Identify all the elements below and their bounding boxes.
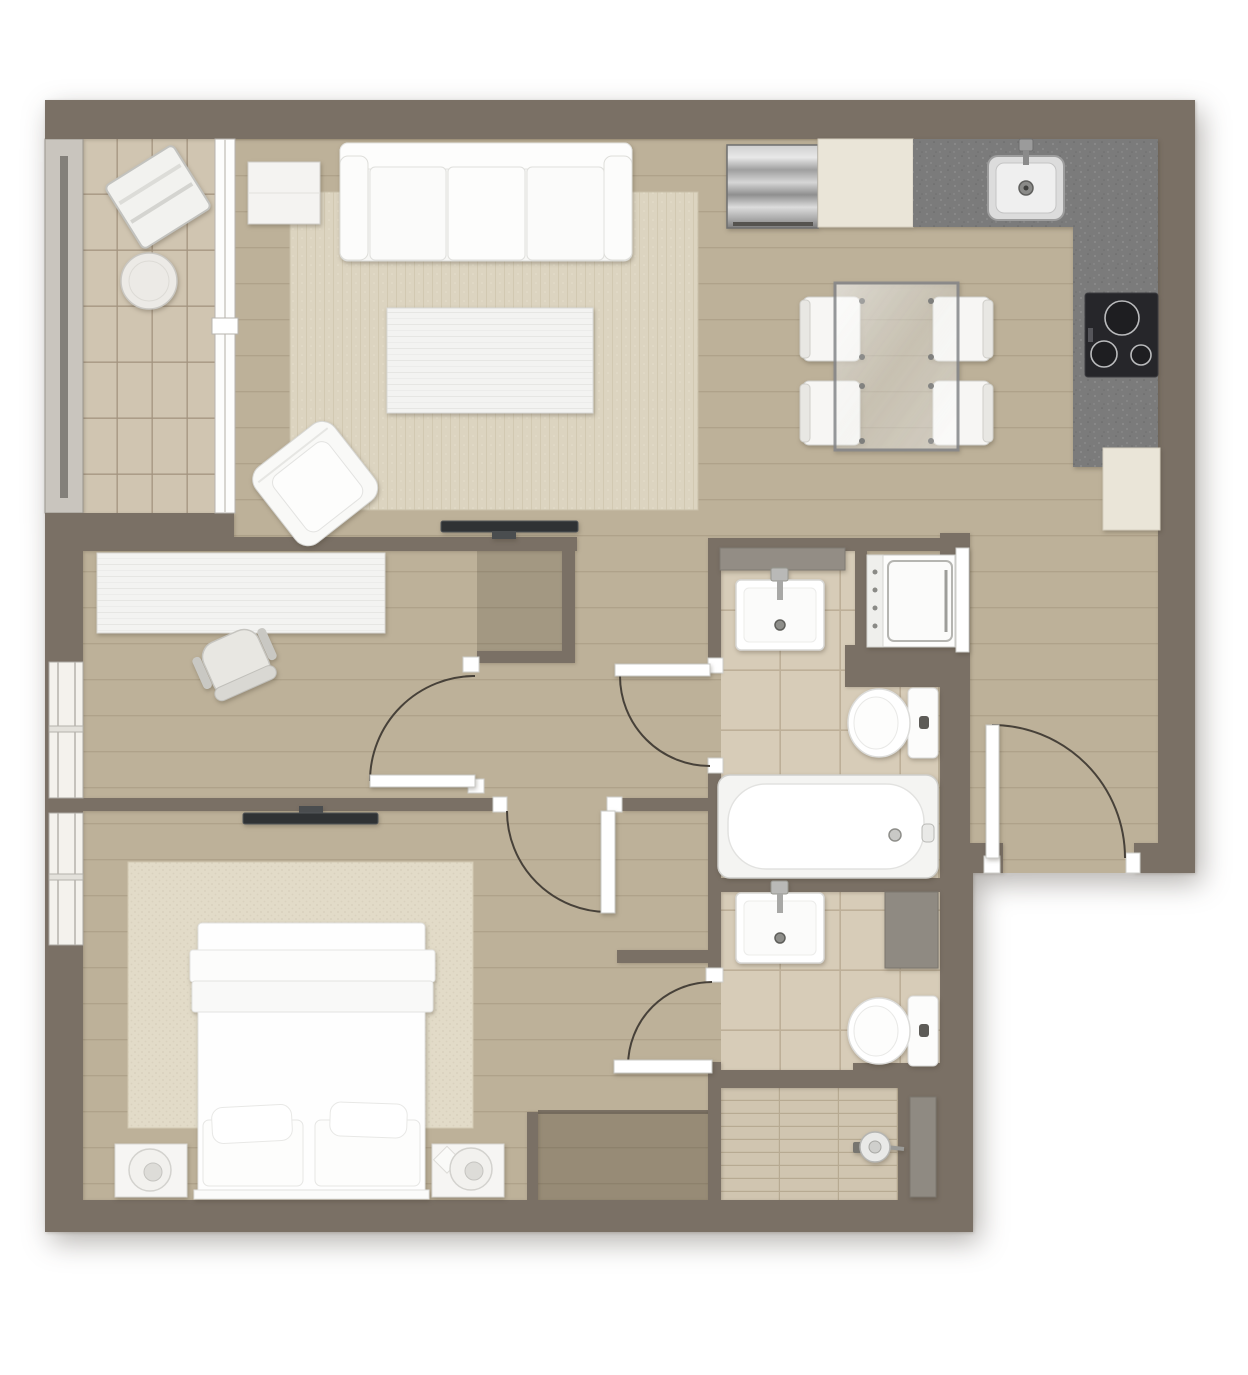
washer-niche-door-panel xyxy=(956,548,969,652)
sofa xyxy=(340,143,632,261)
tv-living-mount xyxy=(492,531,516,539)
chair-back xyxy=(800,384,810,442)
office-window xyxy=(49,662,83,798)
bath-wall-shelf xyxy=(720,548,845,570)
toilet-flush-button xyxy=(919,716,929,729)
office-door-leaf xyxy=(370,775,475,787)
bed-pillow-left xyxy=(211,1104,293,1144)
fridge xyxy=(727,145,818,228)
ensuite-door-leaf xyxy=(614,1060,712,1073)
bedroom-window xyxy=(49,813,83,945)
bathroom-door-jamb-bottom xyxy=(708,758,723,773)
cooktop xyxy=(1085,293,1158,377)
wardrobe-front-edge xyxy=(538,1110,708,1114)
tub-faucet xyxy=(922,824,934,842)
wall-entry-bottom-right-stub xyxy=(1134,843,1195,873)
wall-ensuite-left-upper xyxy=(708,892,721,980)
balcony-glass-junction xyxy=(212,318,238,334)
office-window-sash xyxy=(49,726,83,732)
wall-toilet-chunk xyxy=(845,655,957,687)
cooktop-burner-mid xyxy=(1091,341,1117,367)
wall-ensuite-right-exterior xyxy=(940,873,973,1203)
cooktop-burner-large xyxy=(1105,301,1139,335)
ensuite-sink xyxy=(736,881,824,963)
washing-machine xyxy=(867,555,955,647)
bed-duvet-fold-1 xyxy=(190,950,435,982)
floor-plan-root xyxy=(45,100,1195,1232)
sink-drain xyxy=(775,620,785,630)
tv-bedroom-screen xyxy=(243,813,378,824)
sofa-cushion-3 xyxy=(527,167,604,260)
office-closet-shade xyxy=(477,551,562,651)
floor-plan-canvas xyxy=(0,0,1248,1375)
ensuite-door-jamb-top xyxy=(706,968,723,982)
shower-head-center xyxy=(869,1141,881,1153)
wall-exterior-bottom xyxy=(45,1200,973,1232)
bed-headboard xyxy=(194,1190,429,1199)
tub-drain xyxy=(889,829,901,841)
wall-office-bedroom xyxy=(83,798,493,811)
wall-bath-left-upper xyxy=(708,551,721,673)
wall-vestibule xyxy=(617,950,708,963)
entrance-door-jamb-left xyxy=(984,856,1000,873)
bedroom-door-jamb-right xyxy=(607,797,622,812)
bedroom-window-sash xyxy=(49,874,83,880)
desk xyxy=(97,553,385,633)
nightstand-left xyxy=(115,1144,187,1197)
washer-dial xyxy=(873,570,878,575)
bed xyxy=(190,923,435,1199)
nightstand-right xyxy=(432,1144,504,1197)
sink-faucet-base xyxy=(771,881,788,894)
balcony-railing-slot xyxy=(60,156,68,498)
bedroom-door-leaf xyxy=(601,811,615,913)
fridge-body xyxy=(727,145,818,228)
sofa-back xyxy=(340,143,632,169)
bath-sink xyxy=(736,568,824,650)
sink-faucet-stem xyxy=(777,893,783,913)
shower-niche xyxy=(910,1097,936,1197)
washer-dial xyxy=(873,588,878,593)
wall-closet-right xyxy=(562,551,575,663)
side-table xyxy=(248,162,320,224)
entrance-door-leaf xyxy=(986,725,999,858)
wall-ensuite-mid-divider xyxy=(708,1070,853,1088)
sofa-cushion-1 xyxy=(370,167,446,260)
coffee-table xyxy=(387,308,593,413)
sofa-arm-left xyxy=(340,156,368,260)
wardrobe-shade xyxy=(538,1112,708,1203)
bathroom-door-leaf xyxy=(615,664,710,676)
wall-washer-niche-left xyxy=(855,551,867,645)
wall-exterior-right xyxy=(1158,100,1195,873)
sink-drain-dot xyxy=(1024,186,1029,191)
counter-end-cabinet xyxy=(1103,448,1160,530)
washer-panel xyxy=(867,555,883,647)
counter-cream-top xyxy=(818,139,913,227)
bathtub xyxy=(718,775,938,878)
toilet-seat xyxy=(854,697,898,749)
sink-faucet-stem xyxy=(1023,150,1029,165)
cooktop-burner-small xyxy=(1131,345,1151,365)
cooktop-controls xyxy=(1088,328,1093,342)
toilet-main xyxy=(848,688,938,758)
lamp-center xyxy=(144,1163,162,1181)
sofa-cushion-2 xyxy=(448,167,525,260)
bed-duvet-fold-2 xyxy=(192,981,433,1012)
tub-inner xyxy=(728,784,924,869)
wall-bath-divider xyxy=(708,878,940,892)
wall-ensuite-mid-chunk xyxy=(853,1063,940,1088)
tv-living-screen xyxy=(441,521,578,532)
toilet-flush-button xyxy=(919,1024,929,1037)
wall-hall-bedroom xyxy=(622,798,708,811)
toilet-seat xyxy=(854,1006,898,1056)
balcony-round-table xyxy=(121,253,177,309)
ensuite-cabinet xyxy=(885,892,938,968)
wall-office-top xyxy=(83,537,577,551)
wall-exterior-top xyxy=(45,100,1195,139)
toilet-ensuite xyxy=(848,996,938,1066)
fridge-handle xyxy=(733,222,813,226)
entrance-door-jamb-right xyxy=(1126,853,1140,873)
washer-door xyxy=(888,561,952,641)
wall-wardrobe-left xyxy=(527,1112,538,1203)
wall-closet-bottom xyxy=(477,651,562,663)
balcony-glass-wall xyxy=(212,139,238,513)
bedroom-door-jamb-left xyxy=(493,797,507,812)
chair-back xyxy=(983,300,993,358)
office-door-jamb-top xyxy=(463,657,479,672)
sink-faucet-base xyxy=(1019,139,1033,151)
sink-drain xyxy=(775,933,785,943)
floor-plan xyxy=(0,0,1248,1375)
washer-dial xyxy=(873,624,878,629)
sink-faucet-base xyxy=(771,568,788,581)
chair-back xyxy=(983,384,993,442)
dining-table-glass xyxy=(835,283,958,450)
chair-back xyxy=(800,300,810,358)
lamp-center xyxy=(465,1162,483,1180)
bed-pillow-right xyxy=(329,1102,407,1139)
sink-faucet-stem xyxy=(777,580,783,600)
washer-dial xyxy=(873,606,878,611)
sofa-arm-right xyxy=(604,156,632,260)
